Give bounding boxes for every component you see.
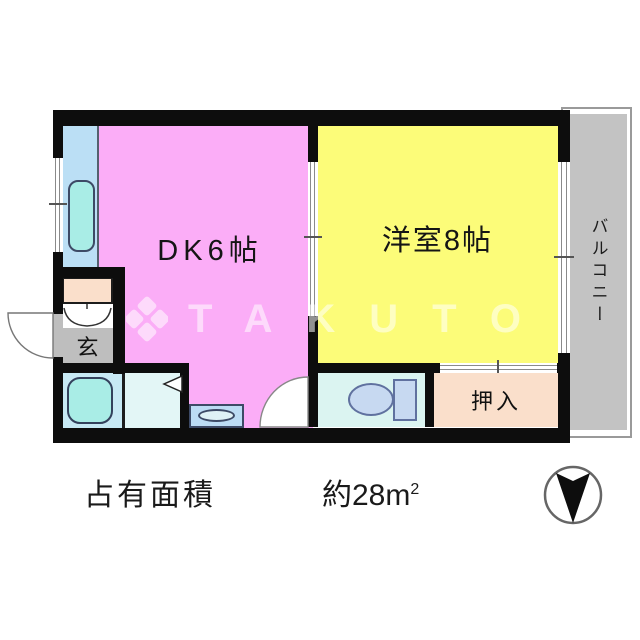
toilet-icon — [348, 383, 394, 416]
closet-label: 押入 — [471, 384, 521, 416]
room-balcony: バルコニー — [569, 114, 627, 430]
room-closet: 押入 — [434, 373, 558, 427]
area-value: 約28m2 — [322, 470, 419, 514]
folding-door-icon — [62, 304, 113, 328]
area-value-text: 約28m — [322, 479, 410, 512]
shoe-cabinet — [62, 277, 113, 304]
door-swing-icon — [0, 305, 62, 367]
area-value-sup: 2 — [410, 481, 419, 498]
wall-toilet-closet — [425, 373, 434, 427]
balcony-label: バルコニー — [586, 217, 611, 327]
kitchen-sink-icon — [68, 180, 95, 252]
wall-mid-upper — [308, 112, 318, 162]
bathtub-icon — [67, 377, 113, 424]
floor-plan: バルコニー 玄 押入 — [0, 0, 640, 640]
window-left-tick — [49, 203, 67, 205]
fusuma-tick — [497, 360, 499, 373]
compass-needle-icon — [543, 464, 605, 526]
room-genkan: 玄 — [62, 328, 113, 364]
genkan-label: 玄 — [76, 330, 98, 362]
door-arrow-icon — [158, 372, 184, 396]
wall-right-upper — [558, 110, 570, 162]
wall-rooms-bottom-right — [557, 363, 570, 373]
wall-left-upper — [53, 110, 63, 158]
western-room-label: 洋室8帖 — [335, 220, 540, 256]
window-left-line — [55, 158, 56, 252]
window-left-line — [59, 158, 60, 252]
dk-label: DK6帖 — [110, 230, 310, 266]
window-right-tick — [554, 256, 574, 258]
washer-pan-icon — [189, 404, 244, 428]
wall-rooms-bottom-mid — [308, 363, 440, 373]
toilet-tank — [393, 379, 417, 421]
washer-oval — [198, 409, 235, 422]
door-swing-icon — [255, 372, 317, 434]
wall-genkan-dk — [113, 267, 125, 374]
sliding-door-line — [310, 162, 311, 316]
area-label: 占有面積 — [84, 470, 216, 514]
sliding-door-line — [314, 162, 315, 316]
